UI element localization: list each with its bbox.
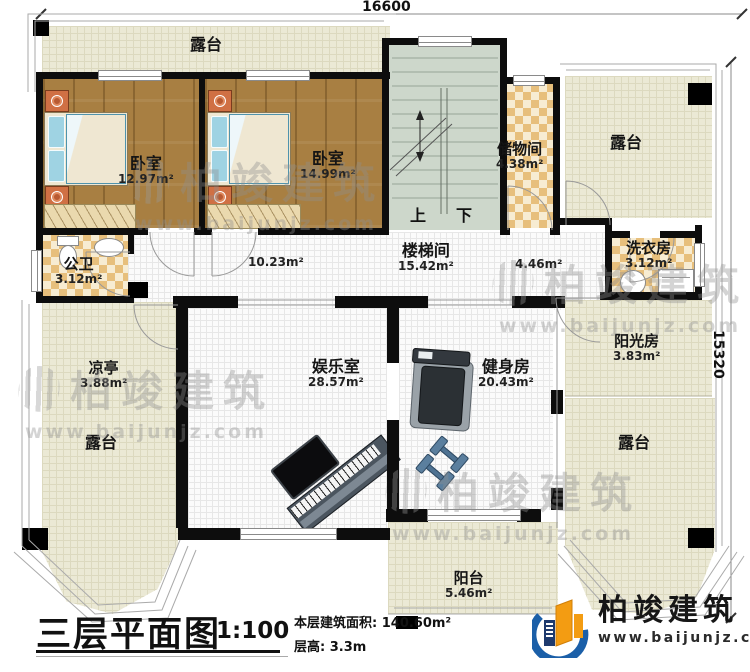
room-label-bedroom-2: 卧室 14.99m² [300,150,356,182]
window-icon [246,70,310,81]
room-label-storage: 储物间 4.38m² [496,141,543,172]
window-icon [513,75,545,86]
mattress-icon [66,114,126,184]
room-label-gym: 健身房 20.43m² [478,358,534,390]
brand-logo: 柏竣建筑 www.baijunjz.com [532,596,750,658]
room-label-sunroom: 阳光房 3.83m² [613,333,660,364]
room-label-terrace-top: 露台 [190,36,222,54]
window-icon [98,70,162,81]
brand-website: www.baijunjz.com [598,630,750,646]
plan-area-info: 本层建筑面积: 140.60m² [294,612,451,631]
floor-plan: 16600 15320 露台 露台 卧室 12.97m² 卧室 14.99m² … [0,0,750,672]
sink-icon [94,238,124,257]
room-label-balcony: 阳台 5.46m² [445,570,492,601]
dimension-top: 16600 [362,0,411,15]
area-label-hall-left: 10.23m² [248,256,304,270]
stair-up-label: 上 [410,202,426,226]
room-label-terrace-left: 露台 [85,434,117,452]
plan-floor-height-info: 层高: 3.3m [294,636,366,655]
treadmill-icon [407,348,478,432]
room-label-terrace-right: 露台 [618,434,650,452]
room-stairwell [389,45,500,230]
room-terrace-right [565,398,715,614]
window-icon [694,243,705,287]
pillow-icon [48,116,65,148]
room-label-terrace-top-right: 露台 [610,134,642,152]
dimension-right: 15320 [710,330,726,379]
room-pavilion-terrace-left [42,302,178,614]
room-label-entertainment: 娱乐室 28.57m² [308,358,364,390]
window-icon [240,528,337,540]
brand-logo-icon [532,596,590,658]
pillow-icon [211,116,228,148]
wardrobe-icon [44,204,136,229]
room-label-bedroom-1: 卧室 12.97m² [118,155,174,187]
wardrobe-icon [207,204,301,229]
area-label-hall-right: 4.46m² [515,258,562,272]
plan-scale: 1:100 [216,618,289,644]
window-icon [31,250,42,292]
pillow-icon [211,150,228,182]
brand-name: 柏竣建筑 [598,596,750,626]
nightstand-icon [208,90,232,112]
room-label-laundry: 洗衣房 3.12m² [625,240,672,271]
pillow-icon [48,150,65,182]
window-icon [418,36,472,47]
mattress-icon [229,114,289,184]
room-label-stairwell: 楼梯间 15.42m² [398,242,454,274]
nightstand-icon [45,90,69,112]
room-label-pavilion: 凉亭 3.88m² [80,360,127,391]
window-icon [427,509,521,521]
room-label-bathroom: 公卫 3.12m² [55,256,102,287]
stair-down-label: 下 [456,202,472,226]
